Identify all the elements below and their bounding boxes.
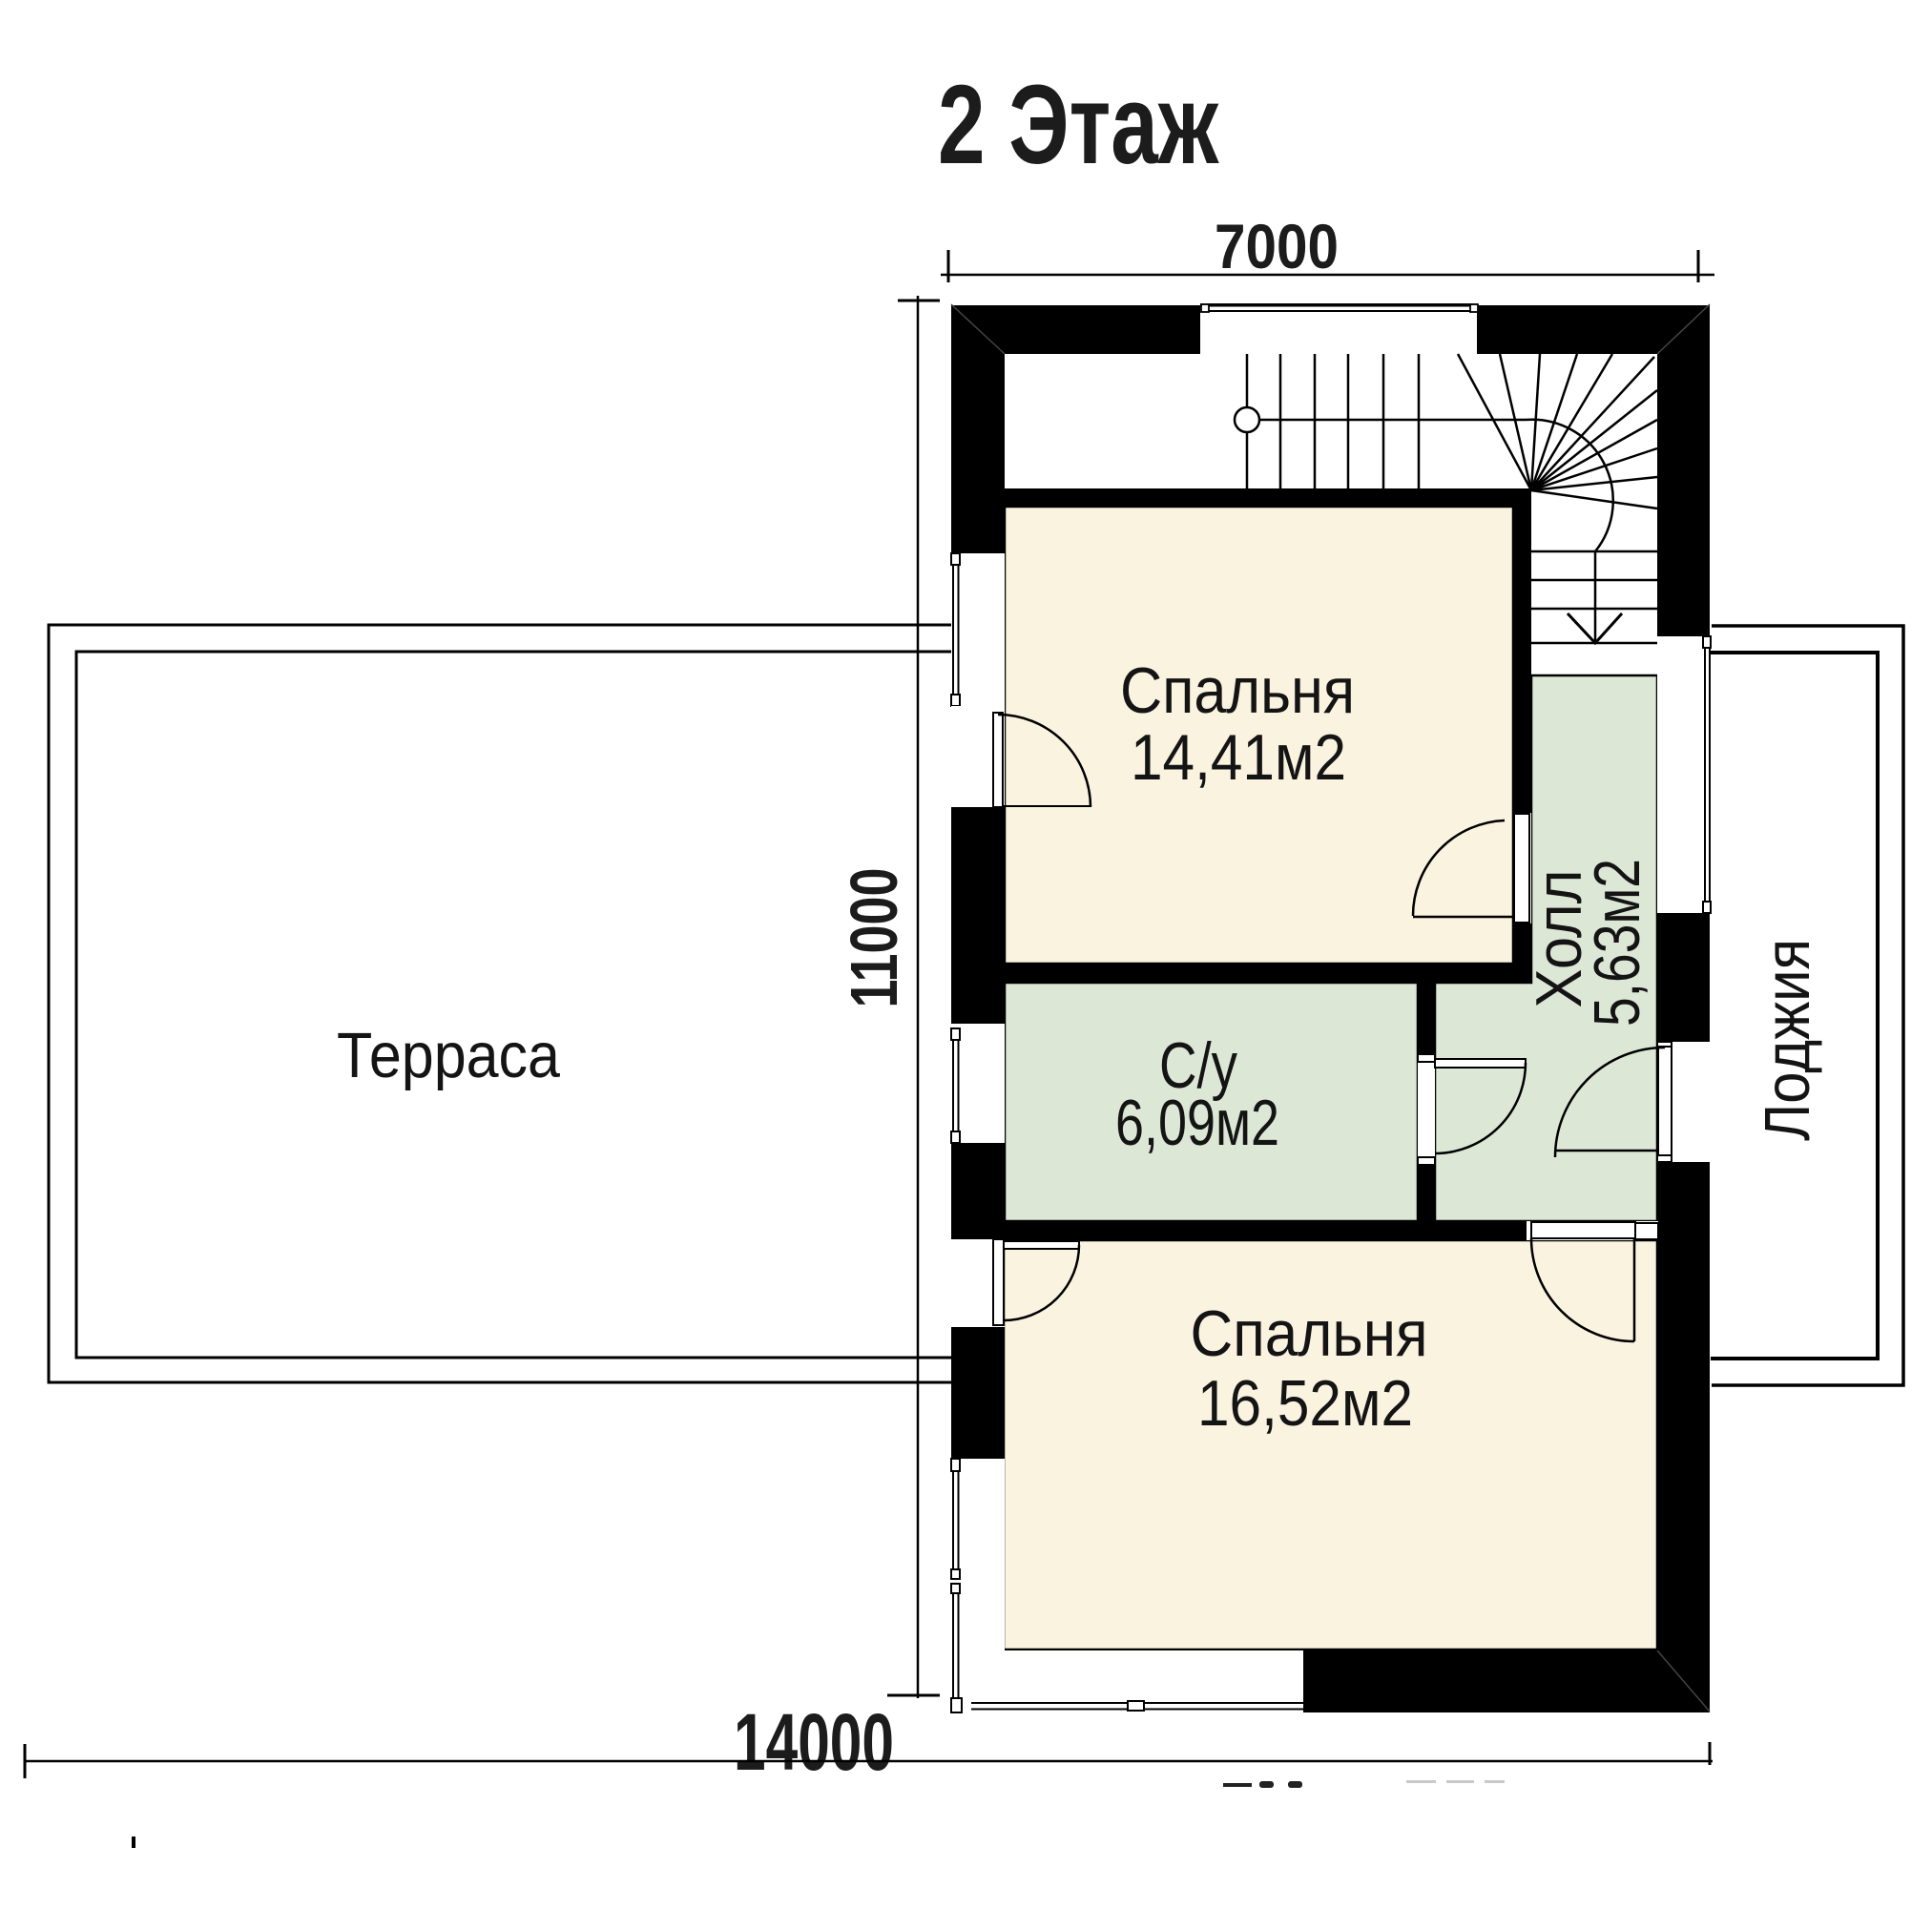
svg-text:6,09м2: 6,09м2 (1115, 1087, 1279, 1159)
svg-text:11000: 11000 (837, 868, 911, 1008)
svg-text:14000: 14000 (734, 1697, 894, 1787)
svg-text:Лоджия: Лоджия (1752, 939, 1823, 1141)
svg-text:16,52м2: 16,52м2 (1197, 1367, 1413, 1440)
svg-text:Спальня: Спальня (1120, 654, 1355, 727)
svg-text:Спальня: Спальня (1191, 1297, 1428, 1370)
svg-text:7000: 7000 (1215, 211, 1339, 281)
svg-text:14,41м2: 14,41м2 (1131, 721, 1346, 794)
svg-text:Терраса: Терраса (337, 1020, 561, 1091)
svg-text:2 Этаж: 2 Этаж (938, 62, 1219, 188)
svg-text:5,63м2: 5,63м2 (1581, 859, 1653, 1027)
